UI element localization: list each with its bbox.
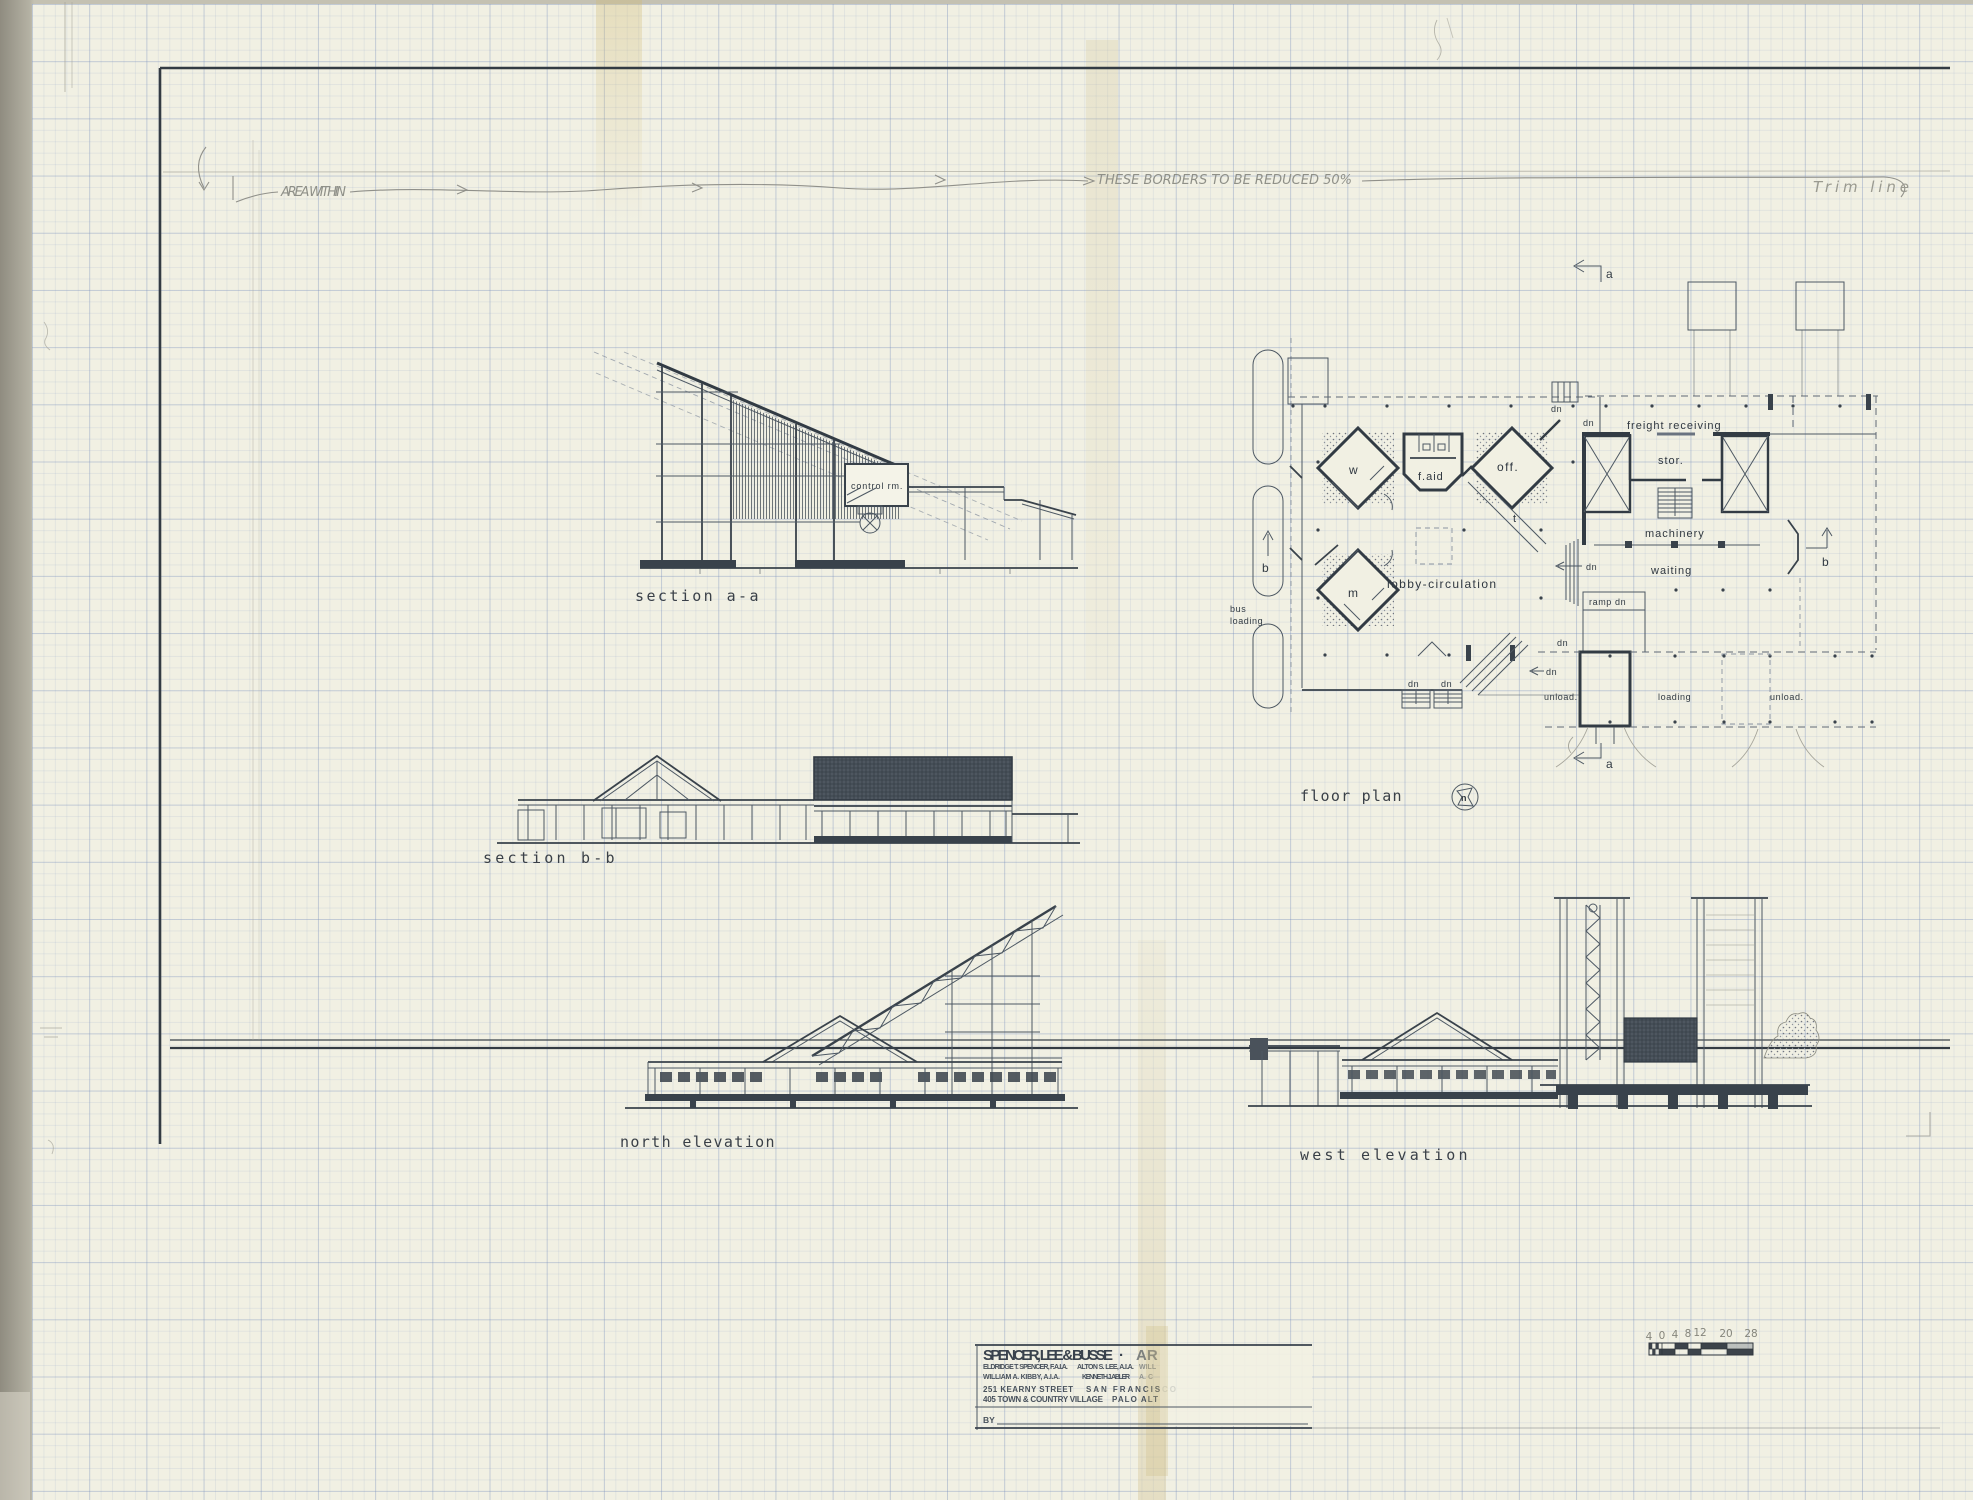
partner-2: ALTON S. LEE, A.I.A. bbox=[1077, 1364, 1134, 1371]
firm-name: SPENCER, LEE & BUSSE bbox=[983, 1347, 1113, 1364]
svg-text:f.aid: f.aid bbox=[1418, 471, 1444, 483]
ramp-area: dn ramp dn bbox=[1556, 539, 1645, 652]
scale-tick: 8 bbox=[1685, 1328, 1692, 1340]
address-2: 405 TOWN & COUNTRY VILLAGE bbox=[983, 1395, 1105, 1404]
scale-tick: 12 bbox=[1693, 1327, 1706, 1339]
drawing-linework: AREA WITHIN THESE BORDERS TO BE REDUCED … bbox=[0, 0, 1973, 1500]
tower-roof-outline bbox=[1688, 282, 1736, 330]
label-lobby: lobby-circulation bbox=[1387, 577, 1498, 591]
svg-text:w: w bbox=[1348, 463, 1359, 477]
label-control-room: control rm. bbox=[851, 481, 903, 491]
label-dn: dn bbox=[1408, 679, 1419, 689]
loading-bays: unload. loading unload. bbox=[1538, 652, 1876, 767]
section-marker-b-left: b bbox=[1262, 561, 1269, 575]
svg-text:t: t bbox=[1513, 513, 1517, 525]
title-block: SPENCER, LEE & BUSSE · AR ELDRIDGE T. SP… bbox=[975, 1326, 1940, 1476]
drawing-sheet: AREA WITHIN THESE BORDERS TO BE REDUCED … bbox=[0, 0, 1973, 1500]
section-marker-a-bottom: a bbox=[1568, 737, 1613, 771]
caption-floor-plan: floor plan bbox=[1300, 787, 1404, 805]
caption-section-aa: section a-a bbox=[635, 587, 761, 605]
svg-text:a: a bbox=[1606, 267, 1613, 281]
label-dn: dn bbox=[1583, 418, 1594, 428]
window-band bbox=[660, 1072, 1056, 1082]
section-bb-drawing: section b-b bbox=[483, 756, 1080, 867]
lobby-stairs: dn dn bbox=[1402, 679, 1462, 708]
service-block: stor. machinery waiting bbox=[1582, 396, 1876, 650]
svg-text:b: b bbox=[1822, 555, 1829, 569]
tower-roof-outline bbox=[1796, 282, 1844, 330]
svg-text:a: a bbox=[1606, 757, 1613, 771]
scale-tick: 20 bbox=[1719, 1328, 1732, 1340]
scale-tick: 4 bbox=[1672, 1329, 1679, 1341]
associate-1: WILLIAM A. KIBBY, A.I.A. bbox=[983, 1374, 1060, 1381]
window-band bbox=[1348, 1070, 1556, 1079]
label-bus: bus bbox=[1230, 604, 1246, 614]
by-label: BY bbox=[983, 1415, 995, 1425]
caption-north-elevation: north elevation bbox=[620, 1133, 777, 1151]
skylight-outline bbox=[1416, 528, 1452, 564]
floor-plan-drawing: a a b bus loading bbox=[1230, 260, 1878, 810]
north-elevation-drawing: north elevation bbox=[620, 906, 1078, 1151]
foliage bbox=[1764, 1013, 1819, 1058]
label-bus-loading: loading bbox=[1230, 616, 1263, 626]
west-elevation-drawing: west elevation bbox=[1248, 898, 1819, 1164]
caption-west-elevation: west elevation bbox=[1300, 1146, 1470, 1164]
scale-bar: 4 0 4 8 12 20 28 bbox=[1646, 1327, 1758, 1355]
label-loading: loading bbox=[1658, 692, 1691, 702]
scale-tick: 4 bbox=[1646, 1331, 1653, 1343]
north-arrow-icon: n bbox=[1452, 784, 1478, 810]
label-dn: dn bbox=[1586, 562, 1597, 572]
section-aa-drawing: control rm. section a-a bbox=[594, 352, 1078, 605]
label-freight-receiving: freight receiving bbox=[1627, 420, 1722, 432]
label-dn: dn bbox=[1546, 667, 1557, 677]
pencil-annotations: AREA WITHIN THESE BORDERS TO BE REDUCED … bbox=[40, 18, 1909, 1154]
room-men: m bbox=[1318, 550, 1398, 630]
section-marker-b-right: b bbox=[1806, 528, 1832, 569]
caption-section-bb: section b-b bbox=[483, 849, 617, 867]
label-ramp-dn: ramp dn bbox=[1589, 597, 1626, 607]
label-storage: stor. bbox=[1658, 455, 1684, 467]
section-marker-a-top: a bbox=[1574, 260, 1613, 282]
partner-1: ELDRIDGE T. SPENCER, F.A.I.A. bbox=[983, 1364, 1068, 1371]
scale-tick: 28 bbox=[1744, 1328, 1757, 1340]
note-area-within: AREA WITHIN bbox=[280, 185, 347, 200]
scale-tick: 0 bbox=[1659, 1330, 1666, 1342]
svg-text:off.: off. bbox=[1497, 460, 1519, 474]
room-first-aid: f.aid bbox=[1404, 434, 1462, 490]
note-trim-line: Trim line bbox=[1813, 178, 1909, 196]
firm-separator: · bbox=[1119, 1347, 1124, 1364]
note-borders-reduced: THESE BORDERS TO BE REDUCED 50% bbox=[1097, 173, 1353, 188]
label-unload: unload. bbox=[1770, 692, 1804, 702]
associate-2: KENNETH J. ABLER bbox=[1082, 1374, 1130, 1381]
svg-text:m: m bbox=[1348, 586, 1359, 600]
label-waiting: waiting bbox=[1650, 565, 1692, 577]
label-dn: dn bbox=[1551, 404, 1562, 414]
label-unload: unload. bbox=[1544, 692, 1578, 702]
label-machinery: machinery bbox=[1645, 528, 1705, 540]
room-women: w bbox=[1318, 428, 1398, 510]
label-dn: dn bbox=[1557, 638, 1568, 648]
bus-loading-lane: b bus loading bbox=[1230, 338, 1291, 714]
label-dn: dn bbox=[1441, 679, 1452, 689]
svg-text:n: n bbox=[1461, 793, 1467, 803]
address-1: 251 KEARNY STREET bbox=[983, 1385, 1075, 1394]
